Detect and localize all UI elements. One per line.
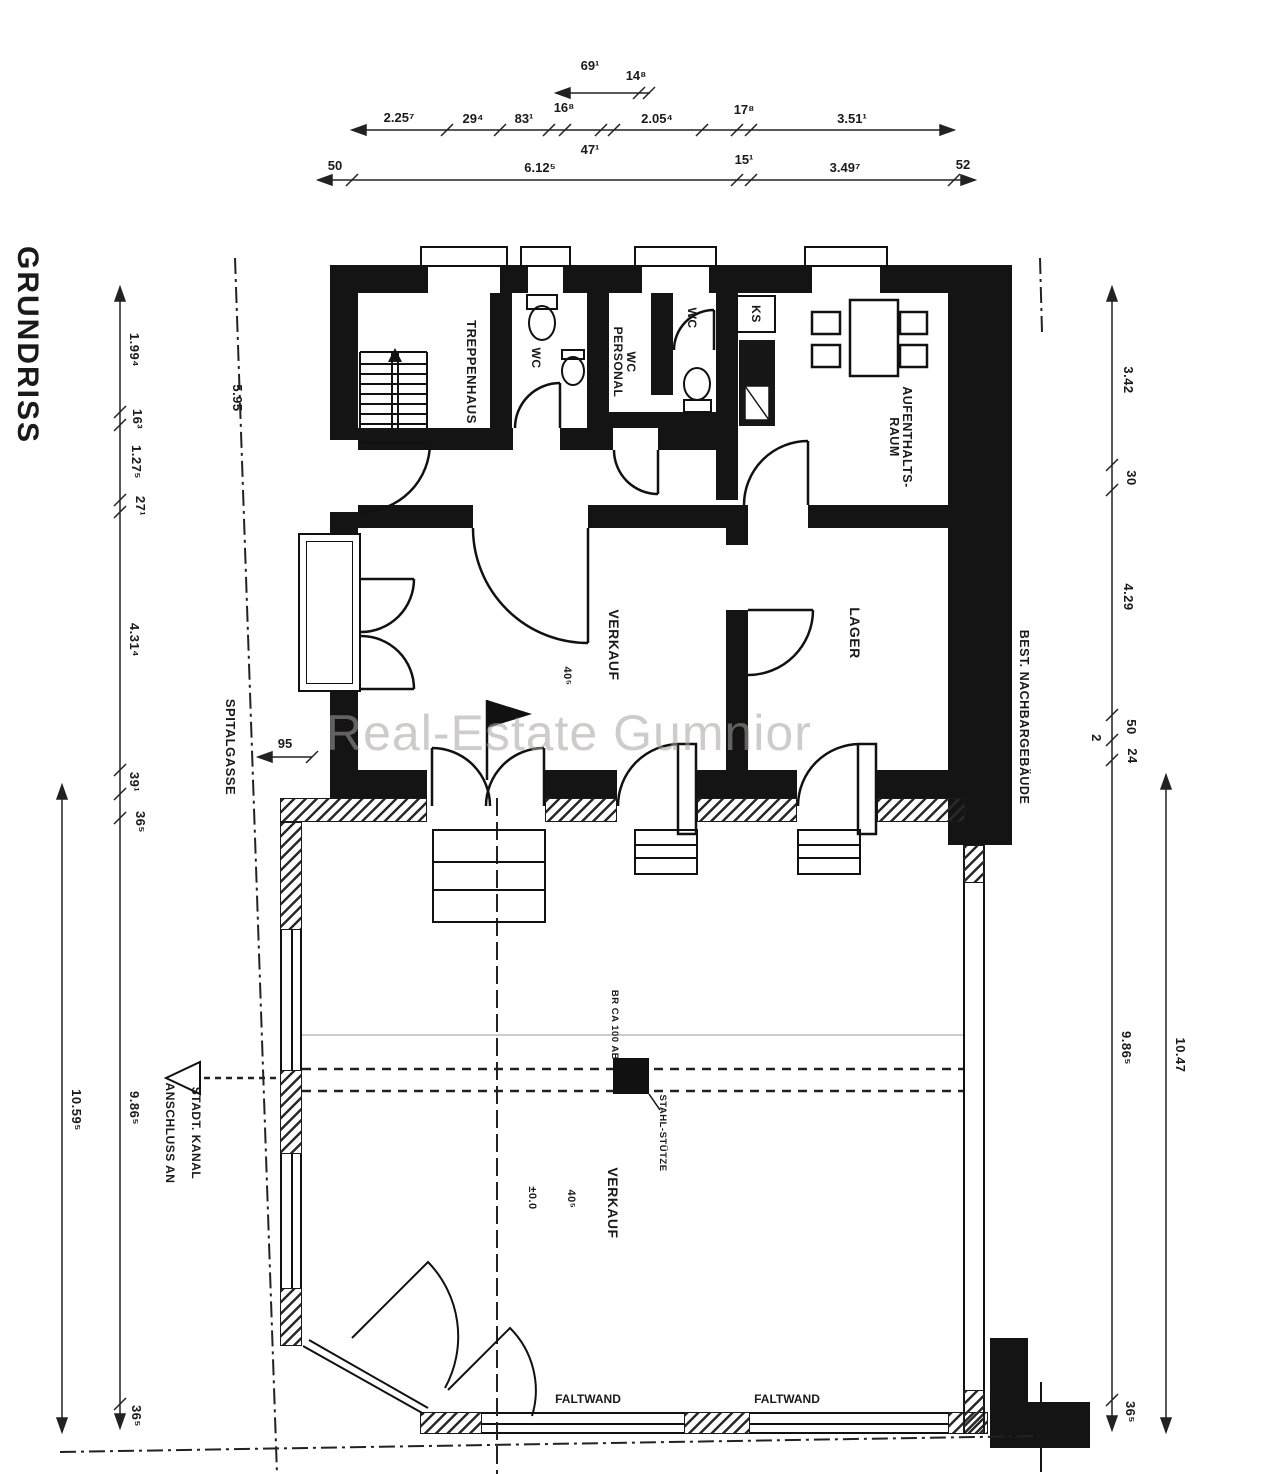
faltwand-window-2 (750, 1412, 948, 1434)
hall-wall-top-4 (877, 798, 965, 822)
hall-guide-lines (204, 1035, 963, 1091)
dim-47: 47¹ (581, 142, 600, 157)
level-mark-upper: 40⁵ (560, 661, 572, 691)
room-label-aufenthaltsraum: AUFENTHALTS- RAUM (886, 379, 914, 495)
dim-595: 5.95 (229, 378, 245, 418)
toilet-icon-1 (527, 295, 557, 340)
hall-wall-left-1 (280, 822, 302, 930)
dim-1059: 10.59⁵ (69, 1084, 83, 1136)
floorplan-canvas: Real-Estate Gumnior GRUNDRISS 69¹ 14⁸ 2.… (0, 0, 1280, 1474)
faltwand-window-1 (482, 1412, 684, 1434)
room-label-verkauf-lower: VERKAUF (605, 1164, 621, 1242)
dim-50-top: 50 (328, 158, 342, 173)
dim-342: 3.42 (1121, 363, 1135, 397)
wall-int-8 (658, 428, 716, 450)
dim-349: 3.49⁷ (830, 160, 861, 175)
label-br-ca: BR CA 100 AB (608, 986, 620, 1064)
room-label-wc1: WC (529, 345, 543, 371)
dim-14: 14⁸ (626, 68, 647, 83)
dim-431: 4.31⁴ (127, 620, 141, 660)
room-label-verkauf-upper: VERKAUF (606, 606, 622, 684)
dim-986-right: 9.86⁵ (1119, 1025, 1133, 1071)
dim-95: 95 (278, 736, 292, 751)
room-label-ks: KS (749, 302, 763, 326)
dim-52: 52 (956, 157, 970, 172)
street-label-spitalgasse: SPITALGASSE (222, 695, 238, 799)
level-mark-lower-b: 40⁵ (564, 1184, 576, 1214)
wall-neighbor (948, 265, 1012, 845)
window-sill-4 (804, 246, 888, 267)
label-anschluss-1: ANSCHLUSS AN (163, 1085, 177, 1181)
dim-29: 29⁴ (463, 111, 484, 126)
sink-icon (562, 350, 584, 385)
hall-wall-top-3 (697, 798, 797, 822)
dim-127: 1.27⁵ (129, 442, 143, 482)
dim-163: 16³ (130, 406, 144, 432)
dim-351: 3.51¹ (837, 111, 867, 126)
dim-1047: 10.47 (1173, 1033, 1187, 1077)
dim-225: 2.25⁷ (384, 110, 415, 125)
wall-left-1 (330, 293, 358, 440)
dim-986-left: 9.86⁵ (127, 1085, 141, 1131)
neighbor-wall-bottom-1 (990, 1338, 1028, 1448)
hall-wall-bottom-1 (420, 1412, 482, 1434)
wall-bottom-3 (877, 770, 948, 798)
dim-50-right: 50 (1124, 716, 1138, 738)
dim-205: 2.05⁴ (641, 111, 673, 126)
room-label-lager: LAGER (847, 605, 863, 661)
window-gap-1 (428, 265, 500, 293)
wall-bottom-1 (545, 770, 617, 798)
wall-int-6 (358, 428, 513, 450)
staircase-icon (360, 348, 427, 428)
wall-int-3 (651, 293, 673, 395)
hall-window-left-2 (280, 1154, 302, 1288)
wall-bottom-2 (697, 770, 797, 798)
steel-column-icon (613, 1058, 660, 1110)
hall-wall-right-hatch-1 (963, 845, 985, 883)
wall-int-1 (490, 293, 512, 428)
dim-24: 24 (1125, 745, 1139, 767)
chamfer-corner (303, 1262, 536, 1416)
dim-199: 1.99⁴ (127, 329, 141, 371)
wall-int-7 (560, 428, 613, 450)
room-label-treppenhaus: TREPPENHAUS (463, 302, 479, 442)
neighbor-wall-bottom-2 (1028, 1402, 1090, 1448)
dim-27: 27¹ (133, 493, 147, 519)
dim-16: 16⁸ (554, 100, 575, 115)
dim-36b: 36⁵ (129, 1403, 143, 1429)
hall-wall-right (963, 845, 985, 1434)
hall-wall-right-hatch-2 (963, 1390, 985, 1434)
window-gap-3 (642, 265, 709, 293)
wall-int-5 (716, 293, 738, 500)
dim-39: 39¹ (127, 769, 141, 795)
hall-wall-top-2 (545, 798, 617, 822)
wall-int-11 (808, 505, 948, 528)
wall-int-10 (588, 505, 748, 528)
wall-int-2 (587, 293, 609, 428)
table-chairs-icon (812, 300, 927, 376)
window-sill-3 (634, 246, 717, 267)
watermark: Real-Estate Gumnior (326, 704, 812, 762)
wall-int-9 (358, 505, 473, 528)
toilet-icon-2 (684, 368, 711, 412)
wall-bottom-corner (330, 770, 427, 798)
boundary-line-right-bottom (1040, 1382, 1042, 1472)
room-label-wc-personal: WC PERSONAL (611, 327, 637, 397)
dim-612: 6.12⁵ (524, 160, 555, 175)
window-sill-2 (520, 246, 571, 267)
label-faltwand-1: FALTWAND (555, 1392, 621, 1406)
dim-69: 69¹ (581, 58, 600, 73)
hall-wall-top-1 (280, 798, 427, 822)
dim-17: 17⁸ (734, 102, 755, 117)
dim-30: 30 (1124, 467, 1138, 489)
dim-429: 4.29 (1121, 580, 1135, 614)
window-sill-1 (420, 246, 508, 267)
wall-left-2 (330, 512, 358, 535)
hall-wall-bottom-2 (684, 1412, 750, 1434)
level-mark-lower-a: ±0.0 (525, 1182, 537, 1214)
window-gap-4 (812, 265, 880, 293)
label-faltwand-2: FALTWAND (754, 1392, 820, 1406)
entrance-steps (433, 830, 860, 922)
dim-36-right: 36⁵ (1123, 1399, 1137, 1425)
wall-int-4 (609, 412, 716, 428)
page-title: GRUNDRISS (8, 255, 46, 435)
hall-wall-left-2 (280, 1070, 302, 1154)
display-window-niche (298, 533, 361, 692)
hall-window-left-1 (280, 930, 302, 1070)
window-gap-2 (528, 265, 563, 293)
label-nachbargebaeude: BEST. NACHBARGEBÄUDE (1015, 622, 1031, 812)
label-anschluss-2: STADT. KANAL (189, 1085, 203, 1181)
room-label-wc2: WC (685, 305, 699, 331)
hall-wall-left-3 (280, 1288, 302, 1346)
label-stahlstuetze: STAHL-STÜTZE (656, 1097, 668, 1169)
dim-15: 15¹ (735, 152, 754, 167)
wall-int-12 (726, 528, 748, 545)
dim-36a: 36⁵ (133, 809, 147, 835)
dim-83: 83¹ (515, 111, 534, 126)
dim-2: 2 (1089, 731, 1103, 745)
